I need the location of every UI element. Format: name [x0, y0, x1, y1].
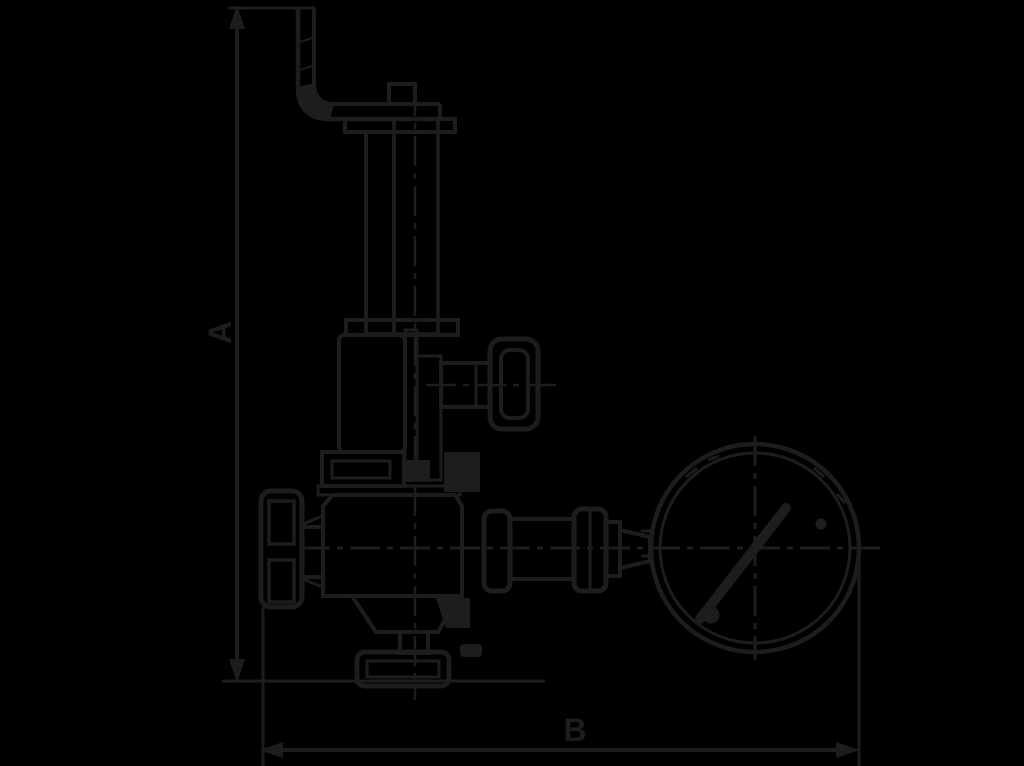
handwheel-window-bottom — [269, 560, 294, 602]
dimension-b-label: B — [563, 712, 586, 748]
pipe-flange-1 — [484, 511, 510, 591]
inlet-flange — [357, 632, 482, 686]
flange-inner — [367, 661, 439, 677]
handwheel-rim — [261, 491, 302, 607]
arrowhead-down-icon — [229, 659, 245, 683]
gauge-screw-dot — [816, 519, 827, 530]
gauge-connection-pipe — [484, 509, 650, 591]
dimension-line-b: B — [259, 552, 860, 766]
valve-technical-drawing: A B — [0, 0, 1024, 766]
test-lever — [298, 9, 440, 119]
drawing-canvas: A B — [0, 0, 1024, 766]
spindle-nut — [389, 84, 415, 104]
arrowhead-right-icon — [836, 742, 860, 758]
guide-column — [366, 132, 394, 334]
bonnet-flange — [318, 452, 480, 495]
valve-body — [302, 495, 470, 632]
handwheel-window-top — [269, 501, 294, 544]
gauge-needle-pivot — [703, 607, 720, 624]
dimension-a-label: A — [202, 321, 238, 344]
housing-body — [339, 335, 405, 452]
gauge-needle — [700, 508, 786, 619]
spindle-assembly — [345, 84, 455, 334]
centerlines — [300, 86, 886, 700]
